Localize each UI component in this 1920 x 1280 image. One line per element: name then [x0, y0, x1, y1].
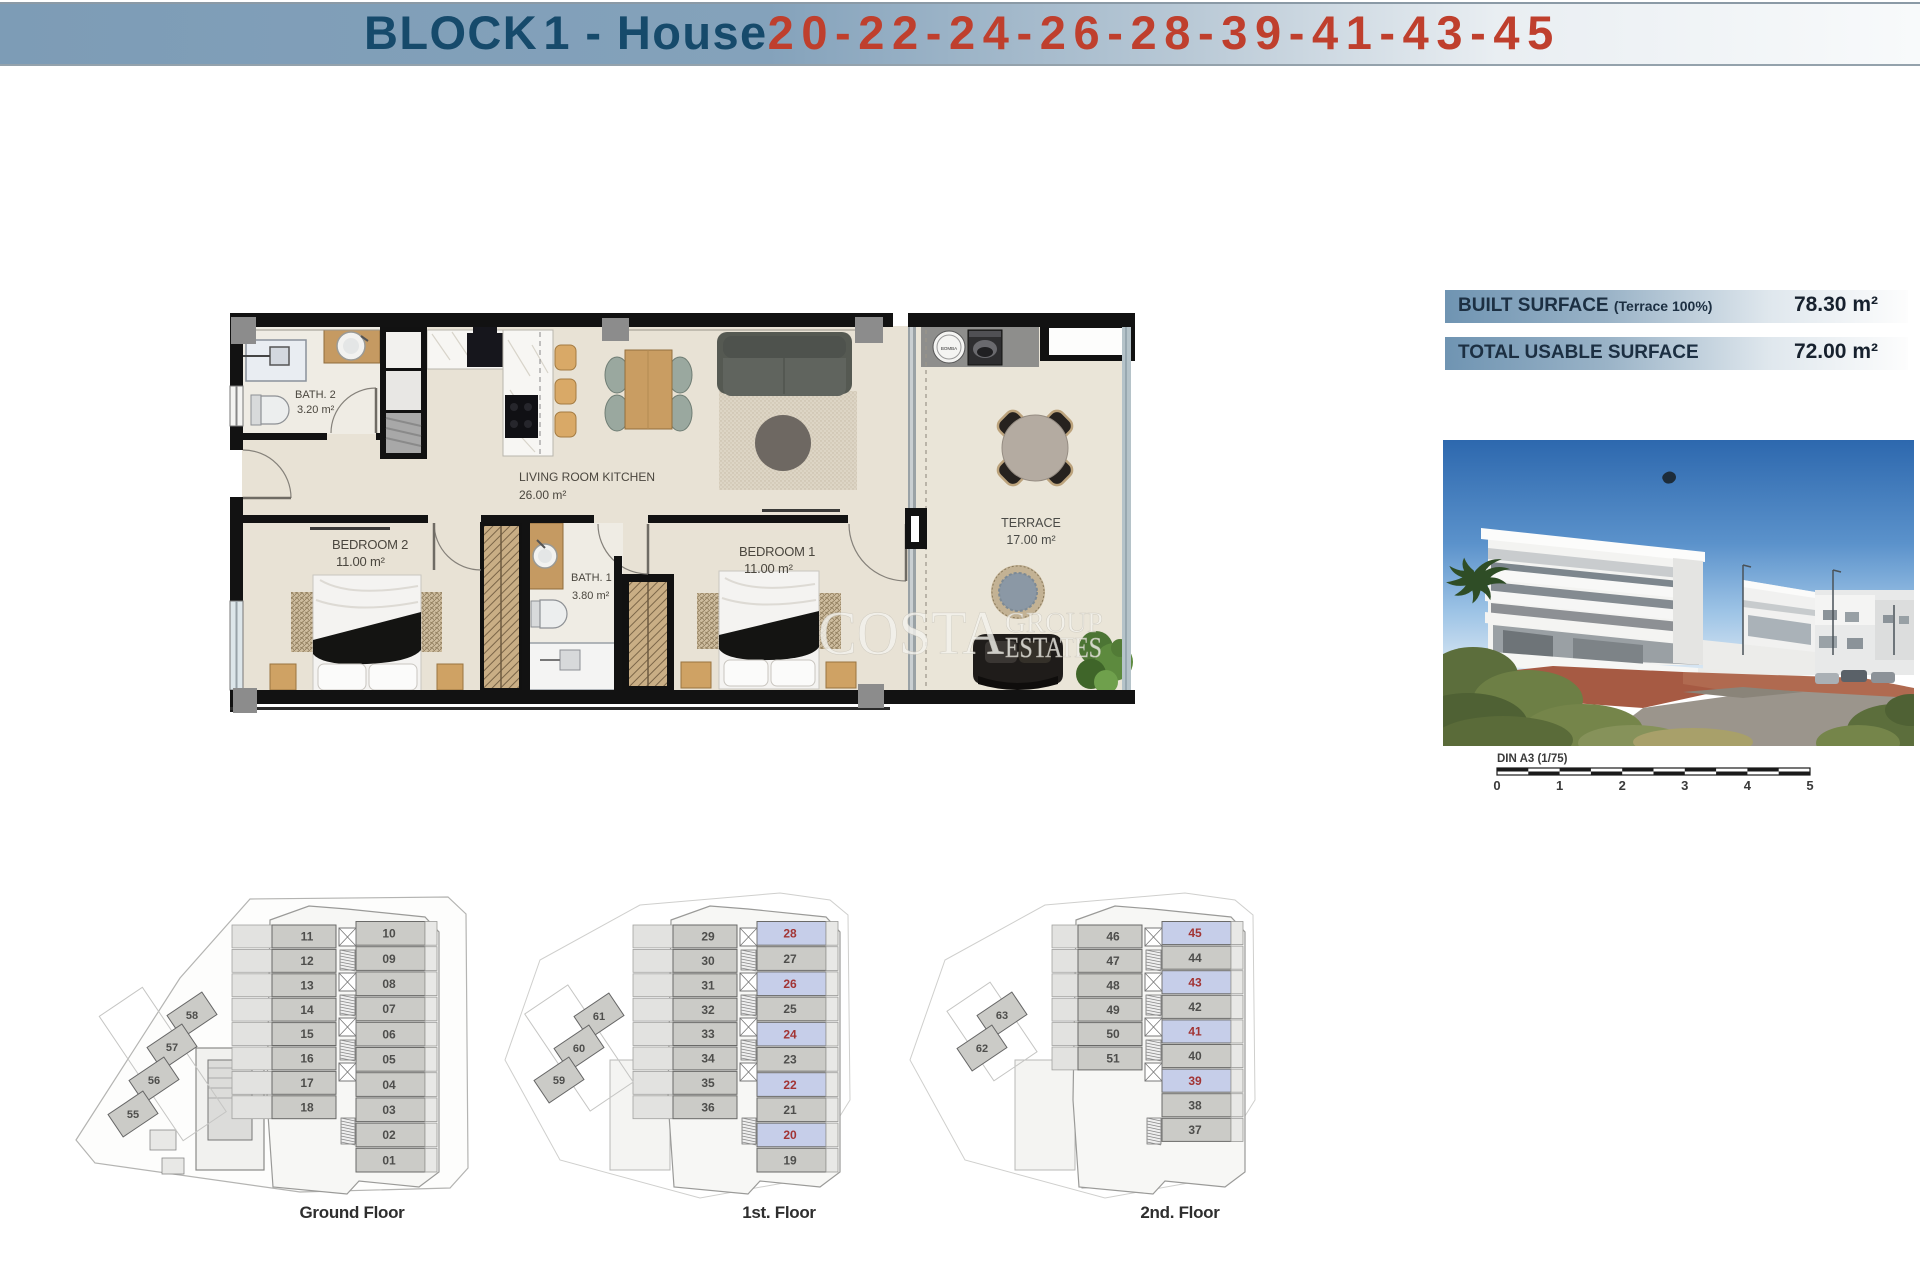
svg-text:48: 48	[1106, 979, 1120, 993]
svg-text:23: 23	[783, 1053, 797, 1067]
svg-text:03: 03	[382, 1103, 396, 1117]
svg-text:57: 57	[166, 1042, 178, 1054]
svg-text:08: 08	[382, 977, 396, 991]
svg-text:47: 47	[1106, 954, 1120, 968]
svg-text:43: 43	[1188, 976, 1202, 990]
svg-text:41: 41	[1188, 1025, 1202, 1039]
svg-text:29: 29	[701, 930, 715, 944]
svg-text:20: 20	[783, 1128, 797, 1142]
svg-text:17: 17	[300, 1076, 314, 1090]
svg-text:32: 32	[701, 1003, 715, 1017]
svg-text:1st. Floor: 1st. Floor	[742, 1203, 816, 1222]
svg-text:62: 62	[976, 1043, 988, 1055]
svg-text:51: 51	[1106, 1052, 1120, 1066]
svg-text:63: 63	[996, 1010, 1008, 1022]
svg-text:46: 46	[1106, 930, 1120, 944]
svg-text:50: 50	[1106, 1027, 1120, 1041]
svg-text:09: 09	[382, 952, 396, 966]
svg-text:60: 60	[573, 1043, 585, 1055]
svg-text:36: 36	[701, 1101, 715, 1115]
svg-text:39: 39	[1188, 1074, 1202, 1088]
svg-text:31: 31	[701, 979, 715, 993]
svg-text:15: 15	[300, 1027, 314, 1041]
svg-text:18: 18	[300, 1101, 314, 1115]
svg-text:55: 55	[127, 1109, 139, 1121]
svg-text:56: 56	[148, 1075, 160, 1087]
svg-text:12: 12	[300, 954, 314, 968]
svg-text:05: 05	[382, 1053, 396, 1067]
svg-text:2nd. Floor: 2nd. Floor	[1140, 1203, 1220, 1222]
svg-text:59: 59	[553, 1075, 565, 1087]
svg-text:33: 33	[701, 1027, 715, 1041]
svg-text:25: 25	[783, 1002, 797, 1016]
svg-text:21: 21	[783, 1103, 797, 1117]
svg-text:07: 07	[382, 1002, 396, 1016]
svg-text:01: 01	[382, 1153, 396, 1167]
svg-text:34: 34	[701, 1052, 715, 1066]
svg-text:11: 11	[301, 930, 314, 944]
svg-text:61: 61	[593, 1011, 605, 1023]
svg-text:45: 45	[1188, 926, 1202, 940]
svg-text:27: 27	[783, 952, 797, 966]
svg-text:44: 44	[1188, 951, 1202, 965]
svg-text:24: 24	[783, 1027, 797, 1041]
svg-text:22: 22	[783, 1078, 797, 1092]
svg-text:30: 30	[701, 954, 715, 968]
svg-text:14: 14	[300, 1003, 314, 1017]
svg-text:40: 40	[1188, 1049, 1202, 1063]
svg-text:42: 42	[1188, 1000, 1202, 1014]
svg-text:13: 13	[300, 979, 314, 993]
svg-text:02: 02	[382, 1128, 396, 1142]
svg-text:37: 37	[1188, 1123, 1202, 1137]
svg-text:19: 19	[783, 1153, 797, 1167]
svg-text:16: 16	[300, 1052, 314, 1066]
svg-text:35: 35	[701, 1076, 715, 1090]
svg-text:Ground Floor: Ground Floor	[300, 1203, 406, 1222]
svg-text:28: 28	[783, 927, 797, 941]
svg-text:26: 26	[783, 977, 797, 991]
svg-text:06: 06	[382, 1027, 396, 1041]
svg-text:04: 04	[382, 1078, 396, 1092]
svg-text:10: 10	[382, 927, 396, 941]
svg-text:49: 49	[1106, 1003, 1120, 1017]
svg-text:58: 58	[186, 1010, 198, 1022]
svg-text:38: 38	[1188, 1099, 1202, 1113]
